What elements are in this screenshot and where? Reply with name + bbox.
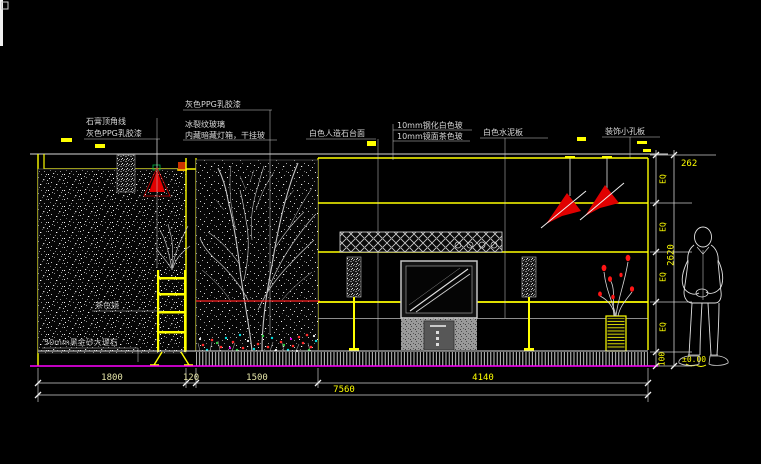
label-white-cement-board: 白色水泥板 bbox=[483, 127, 523, 137]
label-white-artificial-stone: 白色人造石台面 bbox=[309, 128, 365, 138]
label-glass-tea: 10mm镜面茶色玻 bbox=[397, 131, 463, 141]
light-symbol bbox=[95, 144, 105, 148]
light-symbol bbox=[577, 137, 586, 141]
dim-1500: 1500 bbox=[246, 373, 268, 383]
dim-4140: 4140 bbox=[472, 373, 494, 383]
light-symbol bbox=[367, 141, 376, 146]
label-gray-ppg-left: 灰色PPG乳胶漆 bbox=[86, 128, 142, 138]
label-ice-crack-glass: 冰裂纹玻璃 bbox=[185, 119, 225, 129]
label-perforated-panel: 装饰小孔板 bbox=[605, 126, 645, 136]
dim-2620: 2620 bbox=[667, 244, 677, 266]
label-gypsum-line: 石膏顶角线 bbox=[86, 116, 126, 126]
ceiling-pier-section bbox=[117, 155, 135, 192]
label-tea-mirror: 茶色镜 bbox=[95, 300, 119, 310]
dim-eq-2: EQ bbox=[659, 222, 668, 232]
tv-cabinet bbox=[401, 318, 477, 350]
dim-eq-3: EQ bbox=[659, 272, 668, 282]
light-symbol bbox=[61, 138, 72, 142]
dim-100: 100 bbox=[658, 352, 667, 367]
dim-eq-1: EQ bbox=[659, 174, 668, 184]
label-hidden-lightbox: 内藏暗藏灯箱，干挂玻 bbox=[185, 130, 265, 140]
stone-texture-wall bbox=[38, 169, 186, 353]
dim-120: 120 bbox=[183, 373, 199, 383]
dim-1800: 1800 bbox=[101, 373, 123, 383]
tv-screen bbox=[401, 261, 477, 318]
tree-feature-wall bbox=[196, 160, 320, 352]
dim-eq-4: EQ bbox=[659, 322, 668, 332]
label-gray-ppg-top: 灰色PPG乳胶漆 bbox=[185, 99, 241, 109]
label-glass-white: 10mm钢化白色玻 bbox=[397, 120, 463, 130]
elevation-drawing: 石膏顶角线 灰色PPG乳胶漆 灰色PPG乳胶漆 冰裂纹玻璃 内藏暗藏灯箱，干挂玻… bbox=[0, 0, 761, 464]
light-symbol bbox=[637, 141, 647, 144]
cad-viewport: 石膏顶角线 灰色PPG乳胶漆 灰色PPG乳胶漆 冰裂纹玻璃 内藏暗藏灯箱，干挂玻… bbox=[0, 0, 761, 464]
light-symbol bbox=[643, 149, 651, 152]
dim-7560: 7560 bbox=[333, 385, 355, 395]
label-marble-counter: 50mm黑金砂大理石 bbox=[44, 337, 118, 347]
diamond-panel bbox=[340, 232, 502, 252]
dim-262: 262 bbox=[681, 159, 697, 169]
